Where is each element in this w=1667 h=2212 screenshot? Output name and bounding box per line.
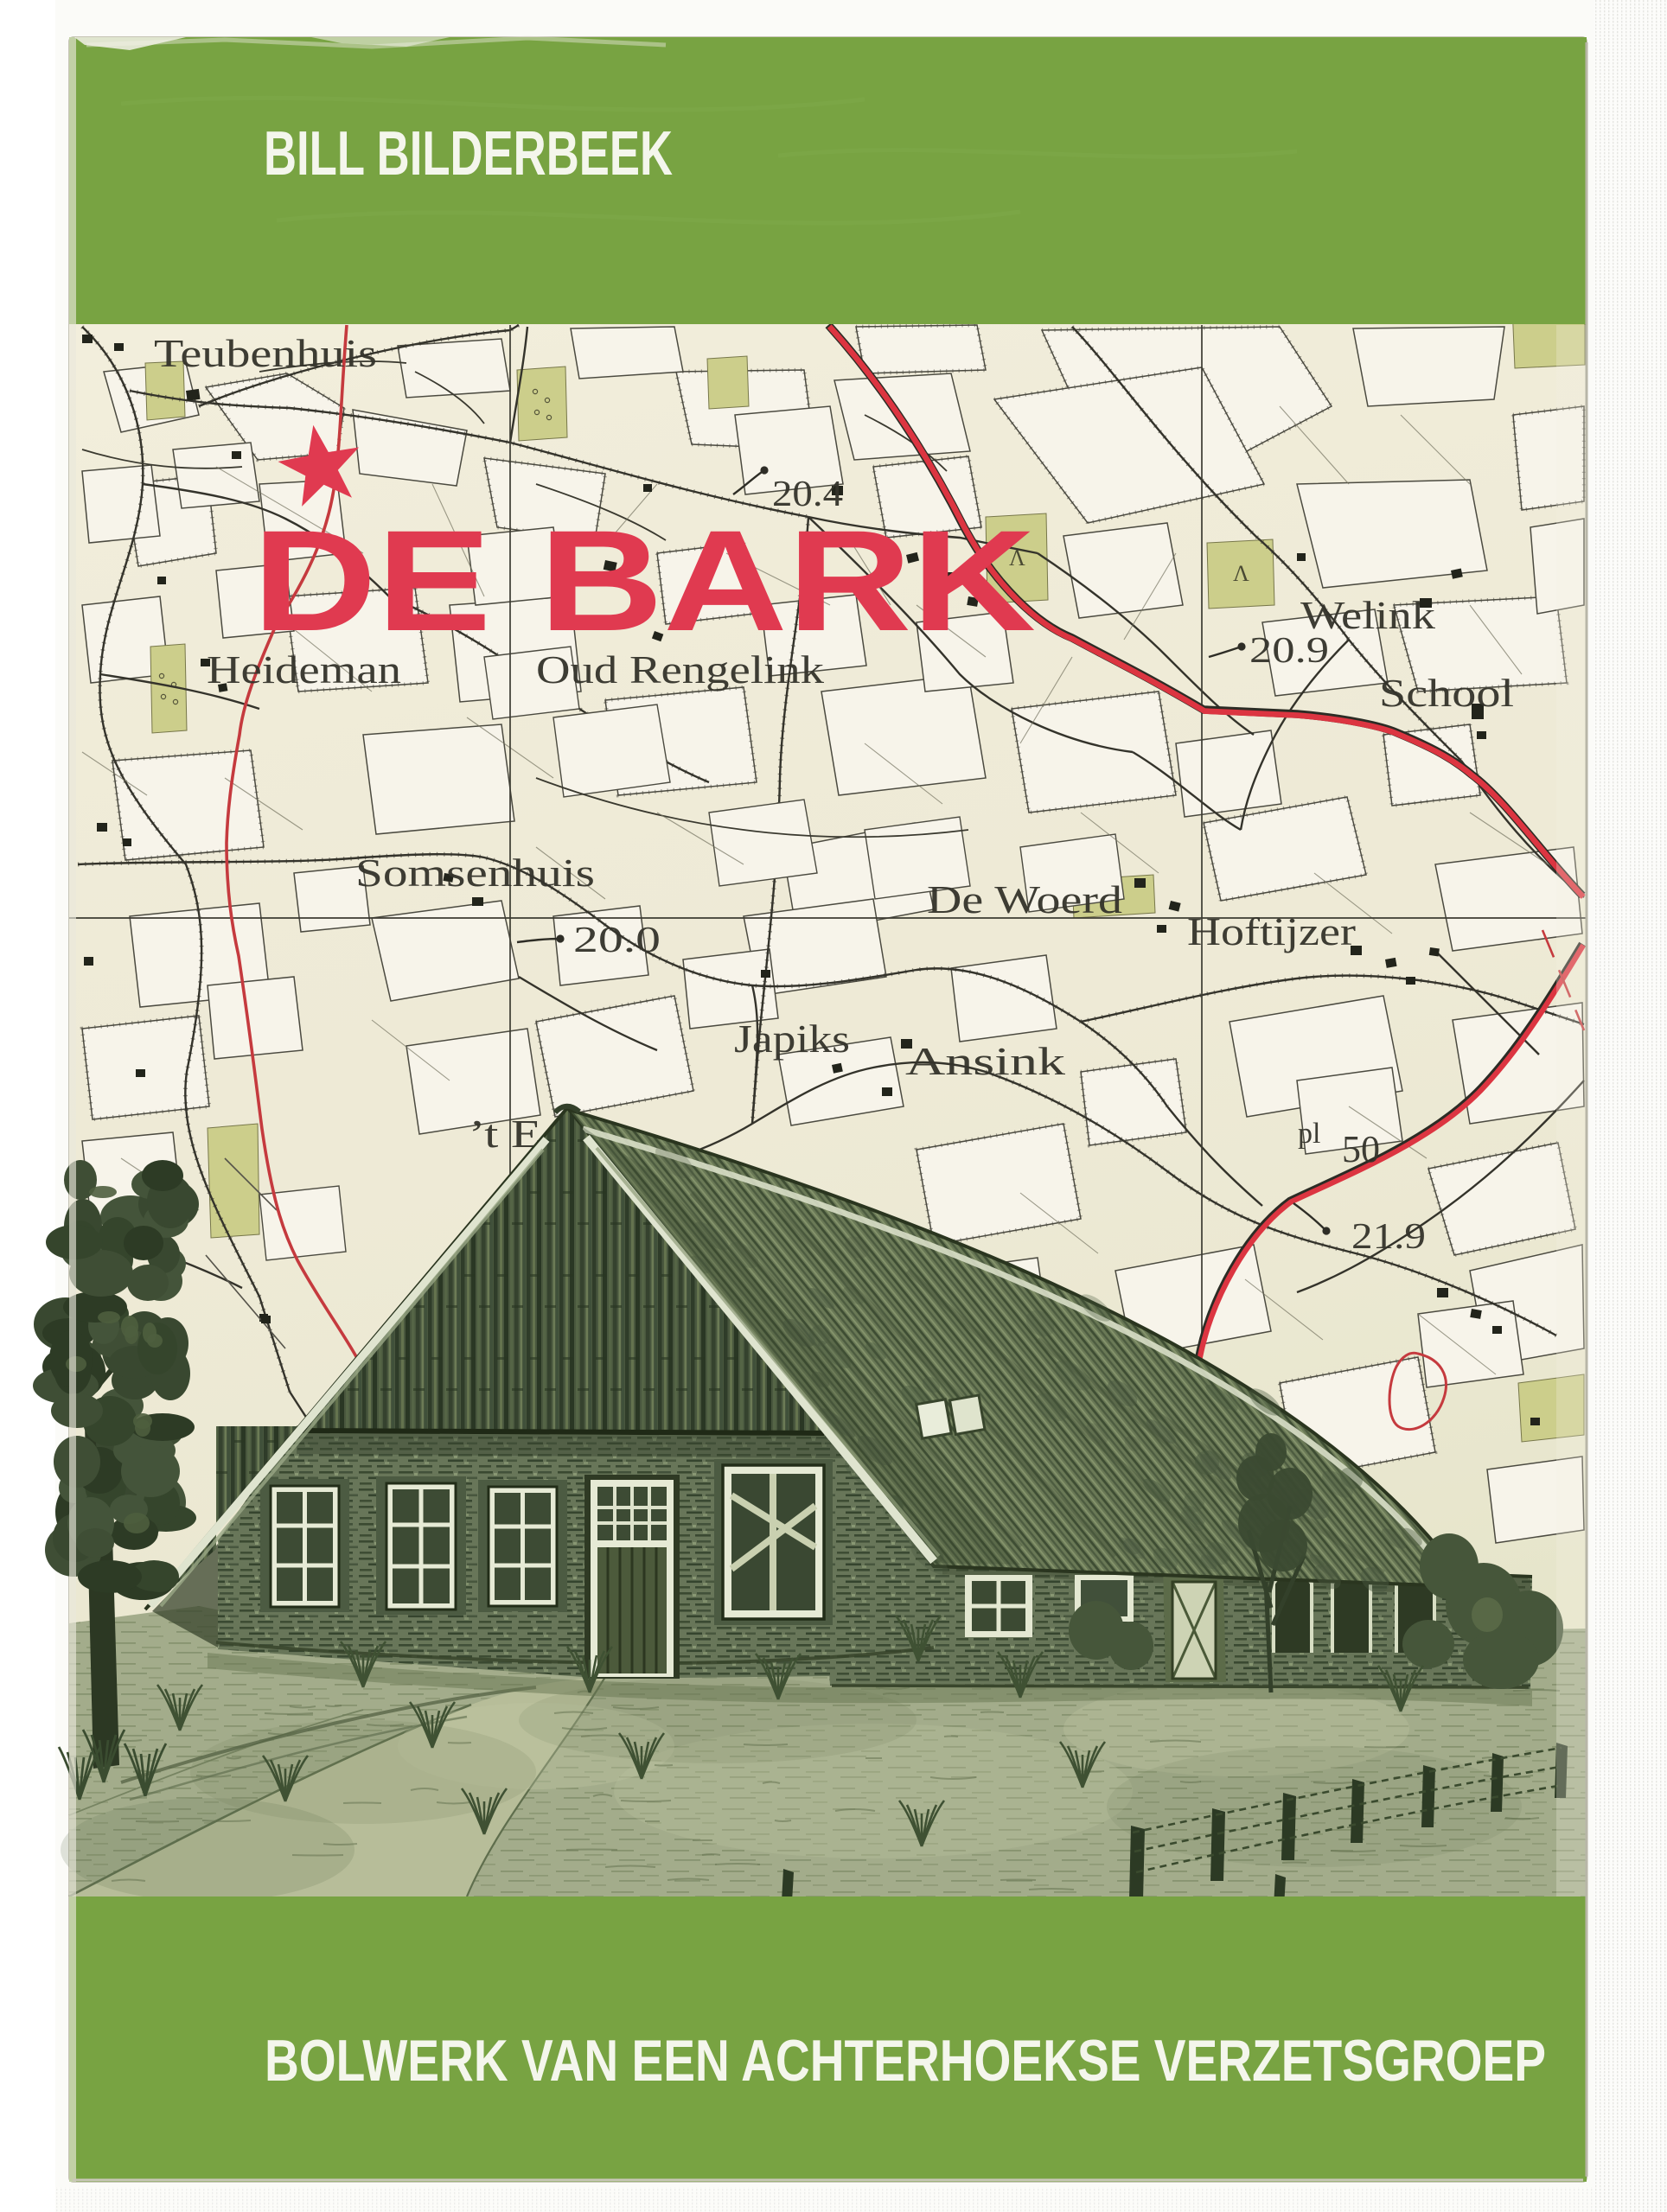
svg-text:20.9: 20.9 — [1249, 631, 1329, 671]
svg-text:BILL BILDERBEEK: BILL BILDERBEEK — [264, 119, 673, 188]
svg-text:DE BARK: DE BARK — [252, 501, 1036, 661]
svg-text:50: 50 — [1342, 1128, 1380, 1170]
svg-text:BOLWERK VAN EEN ACHTERHOEKSE V: BOLWERK VAN EEN ACHTERHOEKSE VERZETSGROE… — [265, 2028, 1546, 2094]
svg-text:Ansink: Ansink — [905, 1039, 1065, 1083]
svg-text:Hoftijzer: Hoftijzer — [1187, 909, 1356, 953]
svg-text:Japiks: Japiks — [734, 1017, 850, 1061]
svg-text:Somsenhuis: Somsenhuis — [355, 851, 595, 895]
svg-text:21.9: 21.9 — [1351, 1217, 1426, 1257]
svg-text:De Woerd: De Woerd — [927, 877, 1122, 921]
svg-text:20.0: 20.0 — [573, 921, 661, 960]
svg-text:pl: pl — [1298, 1118, 1320, 1150]
svg-text:Teubenhuis: Teubenhuis — [154, 331, 377, 375]
svg-text:School: School — [1379, 671, 1514, 715]
svg-text:Λ: Λ — [1233, 561, 1249, 586]
